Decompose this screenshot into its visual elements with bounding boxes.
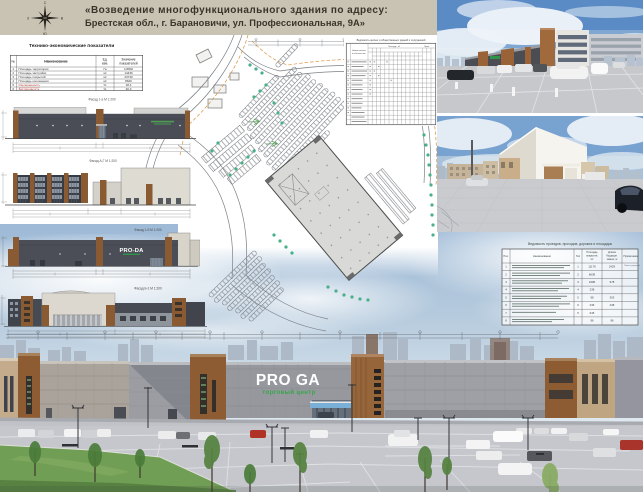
svg-text:Фасад А-Г М 1:200: Фасад А-Г М 1:200 xyxy=(89,159,117,163)
svg-text:изм.: изм. xyxy=(102,62,108,66)
svg-text:98: 98 xyxy=(590,295,594,299)
svg-text:2429: 2429 xyxy=(609,265,616,269)
svg-text:6638: 6638 xyxy=(589,272,596,276)
svg-text:303: 303 xyxy=(610,295,615,299)
svg-text:236: 236 xyxy=(590,303,595,307)
svg-text:Плитка тротуарная: Плитка тротуарная xyxy=(624,265,640,267)
svg-text:В: В xyxy=(61,16,64,20)
svg-text:№: № xyxy=(11,59,15,63)
svg-text:Ведомость жилых и общественных: Ведомость жилых и общественных зданий и … xyxy=(357,38,426,42)
svg-text:Ю: Ю xyxy=(43,32,47,35)
svg-text:30.3: 30.3 xyxy=(126,87,132,91)
svg-text:Фасад 1-б М 1:200: Фасад 1-б М 1:200 xyxy=(134,228,162,232)
svg-text:С: С xyxy=(44,1,47,5)
svg-text:PRO-DA: PRO-DA xyxy=(119,248,144,254)
svg-text:м²: м² xyxy=(591,258,594,261)
svg-text:PRO GA: PRO GA xyxy=(256,372,320,389)
svg-text:Примечание: Примечание xyxy=(623,254,639,258)
svg-text:бордюрн.: бордюрн. xyxy=(606,253,618,257)
svg-text:показателей: показателей xyxy=(119,62,138,66)
svg-text:Площадь: Площадь xyxy=(586,250,598,254)
svg-text:Наименование: Наименование xyxy=(352,50,367,52)
svg-text:торговый центр: торговый центр xyxy=(262,389,315,396)
svg-text:%: % xyxy=(104,87,107,91)
svg-text:238: 238 xyxy=(590,288,595,292)
svg-text:238: 238 xyxy=(610,303,615,307)
svg-text:Наименование: Наименование xyxy=(533,254,552,258)
svg-text:Длина: Длина xyxy=(608,250,616,254)
svg-text:96: 96 xyxy=(590,319,594,323)
svg-text:Прим.: Прим. xyxy=(424,46,430,48)
svg-text:Наименование: Наименование xyxy=(44,59,68,63)
svg-text:и обозначение: и обозначение xyxy=(352,53,366,55)
svg-text:камня, м: камня, м xyxy=(607,258,618,261)
svg-text:Фасад 1-а М 1:200: Фасад 1-а М 1:200 xyxy=(88,98,116,102)
svg-text:З: З xyxy=(27,16,29,20)
svg-text:4398: 4398 xyxy=(589,280,596,284)
svg-text:645: 645 xyxy=(590,311,595,315)
svg-text:Ведомость проездов, проходов,: Ведомость проездов, проходов, дорожек и … xyxy=(528,242,612,246)
svg-text:Площадь, м²: Площадь, м² xyxy=(388,45,400,48)
svg-text:Застроенность: Застроенность xyxy=(19,87,40,91)
svg-text:978: 978 xyxy=(610,280,615,284)
svg-text:96: 96 xyxy=(610,319,614,323)
svg-text:Тип: Тип xyxy=(576,254,581,258)
svg-text:Поз.: Поз. xyxy=(503,254,508,258)
svg-text:Фасад Б-1 М 1:200: Фасад Б-1 М 1:200 xyxy=(134,286,162,290)
svg-text:11178: 11178 xyxy=(588,265,596,269)
